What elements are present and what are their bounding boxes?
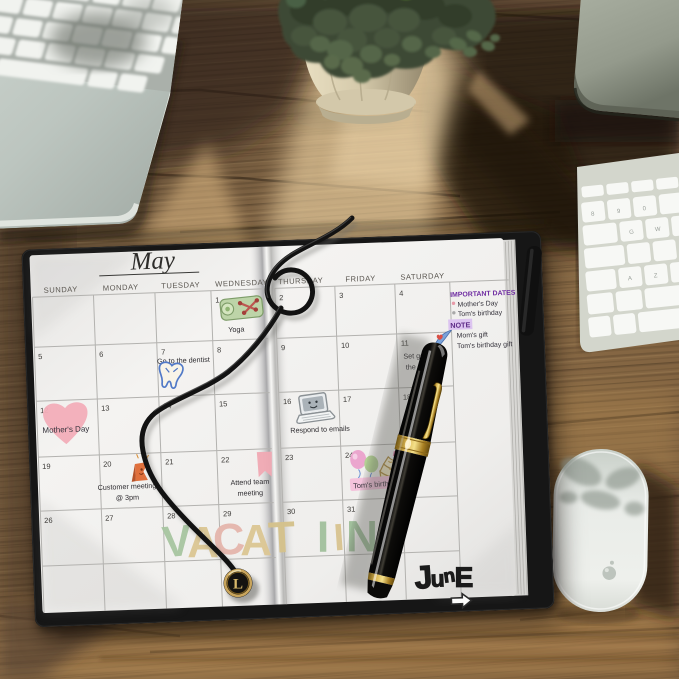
svg-text:L: L — [233, 577, 243, 593]
